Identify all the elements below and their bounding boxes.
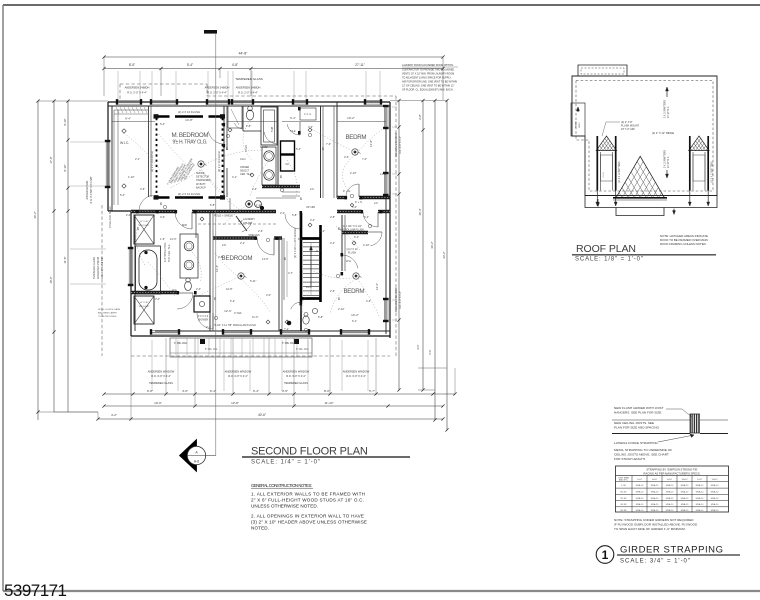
svg-text:R.O. 3'-0" X 4'-4": R.O. 3'-0" X 4'-4" — [399, 291, 402, 309]
svg-text:$: $ — [338, 297, 340, 301]
svg-text:CEILING JOISTS ABOVE. SEE CHAR: CEILING JOISTS ABOVE. SEE CHART — [614, 453, 669, 457]
svg-text:40'-6": 40'-6" — [258, 413, 266, 417]
svg-text:BEDRM: BEDRM — [344, 288, 365, 295]
svg-text:SELECT: SELECT — [240, 170, 250, 173]
svg-text:$: $ — [137, 227, 139, 231]
svg-text:2'-4": 2'-4" — [280, 211, 285, 215]
svg-text:5'-8": 5'-8" — [318, 315, 323, 319]
svg-text:34'-36': 34'-36' — [620, 504, 627, 506]
svg-text:AND HEAT LAMPS: AND HEAT LAMPS — [98, 311, 117, 314]
svg-text:16 R.: 16 R. — [306, 285, 312, 289]
svg-text:SHELVES: SHELVES — [248, 234, 260, 237]
svg-text:LINEN: LINEN — [245, 145, 248, 152]
svg-text:4x12: 4x12 — [667, 479, 673, 481]
svg-text:4'-0": 4'-0" — [416, 344, 420, 349]
svg-text:MSA-20: MSA-20 — [636, 497, 644, 500]
svg-text:$: $ — [160, 202, 162, 206]
svg-text:12" OF CEILING. ONE VENT TO BE: 12" OF CEILING. ONE VENT TO BE WITHIN 12… — [402, 85, 454, 88]
svg-text:SCALE: 1/8" = 1'-0": SCALE: 1/8" = 1'-0" — [575, 257, 643, 263]
svg-text:5'-0": 5'-0" — [120, 193, 125, 197]
svg-text:9'± H. TRAY CLG.: 9'± H. TRAY CLG. — [173, 140, 208, 146]
svg-text:R.O. 2'-0" X 4'-4": R.O. 2'-0" X 4'-4" — [207, 91, 227, 95]
svg-text:AT 16" O.C.: AT 16" O.C. — [667, 156, 670, 168]
svg-text:ANDERSEN WINDOW: ANDERSEN WINDOW — [395, 287, 398, 312]
svg-text:3'-0": 3'-0" — [155, 297, 160, 301]
svg-text:MSA-20: MSA-20 — [651, 503, 659, 506]
svg-text:5'-7": 5'-7" — [369, 389, 375, 393]
svg-text:R.O. 2'-0" X 4'-4": R.O. 2'-0" X 4'-4" — [127, 91, 147, 95]
svg-text:MSA-20: MSA-20 — [696, 509, 704, 512]
svg-text:TO ADJACENT LIVING SPACE FOR S: TO ADJACENT LIVING SPACE FOR SUPPLY — [402, 77, 452, 80]
svg-text:(3) 2" X 10" HEADER ABOVE UNLE: (3) 2" X 10" HEADER ABOVE UNLESS OTHERWI… — [251, 520, 367, 525]
svg-text:6'-2": 6'-2" — [230, 299, 235, 303]
svg-text:MICROLLAM FLUSH: MICROLLAM FLUSH — [340, 228, 364, 231]
svg-text:27'-11": 27'-11" — [355, 63, 365, 67]
svg-text:4'-0 X 4'-0: 4'-0 X 4'-0 — [198, 316, 209, 318]
svg-text:2" X 6" FULL-HEIGHT WOOD STUDS: 2" X 6" FULL-HEIGHT WOOD STUDS AT 16" O.… — [251, 498, 364, 503]
svg-text:6'-4": 6'-4" — [290, 116, 296, 120]
svg-text:MSA-20: MSA-20 — [651, 497, 659, 500]
svg-text:7'-6": 7'-6" — [326, 142, 331, 146]
svg-text:(2) 2" X 12" RIDGE: (2) 2" X 12" RIDGE — [652, 131, 674, 135]
svg-text:4'-0": 4'-0" — [160, 215, 165, 219]
svg-text:MSA-20: MSA-20 — [696, 503, 704, 506]
svg-text:HANGERS. SEE PLAN FOR SIZE.: HANGERS. SEE PLAN FOR SIZE. — [614, 411, 662, 415]
svg-text:TILE: TILE — [290, 129, 296, 133]
svg-text:ANDERSEN 2468DH: ANDERSEN 2468DH — [125, 86, 150, 90]
svg-text:R.O. 3'-0" X 4'-4": R.O. 3'-0" X 4'-4" — [399, 136, 402, 154]
svg-text:5'-11": 5'-11" — [250, 279, 256, 283]
svg-text:1'-6": 1'-6" — [160, 237, 165, 241]
svg-text:10'-4": 10'-4" — [418, 208, 422, 215]
svg-text:5397171: 5397171 — [4, 581, 67, 600]
svg-text:MIR.: MIR. — [182, 223, 188, 227]
svg-text:TO SPAN EACH SIDE OF GIRDER 1': TO SPAN EACH SIDE OF GIRDER 1'-0" MINIMU… — [614, 527, 686, 531]
svg-text:5'-4": 5'-4" — [296, 147, 301, 151]
svg-text:MSA-20: MSA-20 — [681, 509, 689, 512]
svg-text:10'-2": 10'-2" — [347, 116, 355, 120]
svg-text:2'-10": 2'-10" — [350, 171, 357, 175]
svg-text:5'-0": 5'-0" — [428, 349, 432, 354]
svg-text:14'-8": 14'-8" — [380, 172, 387, 176]
svg-text:2-8: 2-8 — [222, 243, 226, 247]
svg-text:3'-6": 3'-6" — [308, 125, 313, 129]
svg-text:TUB: TUB — [270, 127, 274, 132]
svg-text:12x12: 12x12 — [712, 479, 719, 481]
svg-text:8'-10": 8'-10" — [63, 118, 67, 125]
svg-text:3'-1": 3'-1" — [316, 249, 321, 253]
svg-text:7'-1": 7'-1" — [284, 327, 289, 331]
svg-text:11'-0": 11'-0" — [252, 315, 258, 319]
svg-text:OWNER: OWNER — [240, 166, 249, 169]
svg-text:MSA-20: MSA-20 — [681, 497, 689, 500]
svg-text:3'-2": 3'-2" — [320, 229, 325, 233]
svg-text:4'-7": 4'-7" — [288, 271, 293, 275]
svg-text:14'-8": 14'-8" — [185, 118, 193, 122]
svg-text:10x12: 10x12 — [682, 479, 689, 481]
svg-text:ROOF FRAMING UNLESS NOTED.: ROOF FRAMING UNLESS NOTED. — [660, 242, 707, 246]
svg-text:MSA-20: MSA-20 — [666, 509, 674, 512]
svg-text:ANDERSEN WINDOW: ANDERSEN WINDOW — [148, 370, 175, 374]
svg-text:1x12: 1x12 — [697, 479, 703, 481]
svg-text:(2) 2 X 12 BATTENS: (2) 2 X 12 BATTENS — [711, 161, 714, 183]
svg-text:14" X 46": 14" X 46" — [139, 221, 148, 223]
svg-text:2 X 8: 2 X 8 — [603, 172, 605, 178]
svg-text:2-6: 2-6 — [374, 201, 378, 205]
svg-text:UNLESS OTHERWISE NOTED.: UNLESS OTHERWISE NOTED. — [251, 504, 318, 509]
svg-text:2'-8": 2'-8" — [418, 114, 422, 120]
svg-text:4'-2": 4'-2" — [111, 413, 117, 417]
svg-text:6'-4": 6'-4" — [210, 389, 216, 393]
svg-text:10'-2": 10'-2" — [351, 313, 359, 317]
svg-text:$: $ — [226, 147, 228, 151]
svg-text:AT 16" O.C.: AT 16" O.C. — [667, 106, 670, 118]
svg-text:GIRDER STRAPPING: GIRDER STRAPPING — [620, 545, 724, 556]
svg-text:SKYLIGHT: SKYLIGHT — [139, 306, 150, 308]
svg-text:$: $ — [300, 197, 302, 201]
svg-text:MSA-20: MSA-20 — [636, 484, 644, 487]
svg-text:3'-0": 3'-0" — [266, 293, 271, 297]
svg-text:1x12: 1x12 — [637, 479, 643, 481]
svg-text:MSA-20: MSA-20 — [696, 491, 704, 494]
svg-text:PLAN FOR SIZE AND SPACING: PLAN FOR SIZE AND SPACING — [614, 426, 660, 430]
svg-text:5'-4": 5'-4" — [187, 63, 193, 67]
svg-text:2 X 10 RAFTERS: 2 X 10 RAFTERS — [664, 150, 667, 168]
svg-text:TUB. CER. TILE: TUB. CER. TILE — [168, 244, 171, 262]
svg-text:STRAPPING BY 'SIMPSON STRONG-T: STRAPPING BY 'SIMPSON STRONG-TIE' — [646, 468, 698, 472]
svg-text:BEDRM: BEDRM — [346, 134, 367, 141]
svg-text:$: $ — [280, 175, 282, 179]
svg-text:AIR FOR DRYER LINE. ONE VENT T: AIR FOR DRYER LINE. ONE VENT TO BE WITHI… — [402, 81, 457, 84]
svg-text:2-6: 2-6 — [310, 187, 314, 191]
svg-text:2'-6": 2'-6" — [330, 289, 335, 293]
svg-text:ANDERSEN A31: ANDERSEN A31 — [86, 180, 89, 200]
svg-text:UP 16R: UP 16R — [306, 205, 315, 209]
svg-text:MSA-20: MSA-20 — [651, 484, 659, 487]
svg-text:5'-2": 5'-2" — [364, 215, 369, 219]
svg-text:AT 7'-0" AFF: AT 7'-0" AFF — [621, 128, 635, 131]
svg-text:TEMPERED GLASS: TEMPERED GLASS — [284, 381, 308, 385]
svg-text:P. + S.: P. + S. — [343, 189, 351, 193]
svg-text:6'-8": 6'-8" — [210, 203, 215, 207]
svg-text:W.H.: W.H. — [346, 259, 352, 263]
svg-text:2'-1": 2'-1" — [135, 157, 140, 161]
svg-text:7'-0": 7'-0" — [362, 157, 367, 161]
svg-text:ANDERSEN WINDOW: ANDERSEN WINDOW — [395, 132, 398, 157]
svg-text:LATERAL FORCE STRAPPING: LATERAL FORCE STRAPPING — [614, 441, 658, 445]
svg-text:SCALE: 3/4" = 1'-0": SCALE: 3/4" = 1'-0" — [620, 559, 690, 565]
svg-text:6" DBL RAIL: 6" DBL RAIL — [174, 342, 188, 345]
svg-text:3'-4": 3'-4" — [330, 241, 335, 245]
svg-text:3'-9": 3'-9" — [144, 209, 149, 213]
svg-text:DN.: DN. — [298, 237, 303, 241]
svg-text:FLUSH: FLUSH — [348, 251, 356, 254]
svg-text:8'-0": 8'-0" — [324, 389, 330, 393]
svg-text:TO BE PROVIDED: TO BE PROVIDED — [98, 316, 117, 318]
svg-text:2'-10": 2'-10" — [180, 195, 187, 199]
svg-text:RIDGE: RIDGE — [576, 121, 578, 128]
svg-text:OF FLOOR. CL. EQUAL/2000 BTU M: OF FLOOR. CL. EQUAL/2000 BTU MIN. EACH. — [402, 89, 453, 92]
svg-text:R.O. 3'-0" X 4'-4": R.O. 3'-0" X 4'-4" — [346, 374, 366, 378]
svg-text:12'-8": 12'-8" — [231, 401, 239, 405]
svg-text:2'-0": 2'-0" — [126, 213, 131, 217]
svg-text:R.O. 3'-0" X 4'-4": R.O. 3'-0" X 4'-4" — [151, 374, 171, 378]
svg-text:4'-10": 4'-10" — [363, 243, 370, 247]
svg-text:1-30: 1-30 — [621, 485, 626, 487]
svg-text:4'-0": 4'-0" — [182, 389, 188, 393]
svg-text:4'-1": 4'-1" — [232, 175, 237, 179]
svg-text:6'-1": 6'-1" — [352, 319, 357, 323]
svg-text:5'-0": 5'-0" — [352, 205, 357, 209]
svg-text:MSA-20: MSA-20 — [636, 509, 644, 512]
svg-text:MSA-20: MSA-20 — [711, 509, 719, 512]
svg-text:2'-6": 2'-6" — [252, 187, 257, 191]
svg-text:R.O. 2'-0" X 4'-4": R.O. 2'-0" X 4'-4" — [238, 91, 258, 95]
svg-text:4'-1": 4'-1" — [238, 219, 243, 223]
svg-text:ROOF PLAN: ROOF PLAN — [576, 243, 637, 255]
svg-text:CLO.: CLO. — [240, 157, 246, 161]
svg-text:ANDERSEN CW135: ANDERSEN CW135 — [97, 256, 100, 279]
svg-text:6'-4": 6'-4" — [354, 235, 359, 239]
svg-text:R.O. 3'-0" X 4'-4": R.O. 3'-0" X 4'-4" — [286, 374, 306, 378]
svg-text:2'-2": 2'-2" — [240, 241, 245, 245]
svg-text:2'-8": 2'-8" — [330, 215, 335, 219]
svg-text:MSA-20: MSA-20 — [666, 503, 674, 506]
svg-text:MSA-20: MSA-20 — [681, 503, 689, 506]
svg-text:NOTE: LIGHTS, FANS: NOTE: LIGHTS, FANS — [98, 308, 121, 311]
svg-text:MSA-20: MSA-20 — [651, 509, 659, 512]
svg-text:R.O. 3'-0 5/8" X 3'-0 5/8": R.O. 3'-0 5/8" X 3'-0 5/8" — [90, 176, 93, 203]
svg-text:(2) 2 X 10 FLUSH: (2) 2 X 10 FLUSH — [217, 151, 221, 172]
svg-text:5 1/4" X 11 7/8" PARALLAM FLUS: 5 1/4" X 11 7/8" PARALLAM FLUSH — [214, 323, 256, 327]
svg-text:32'-34': 32'-34' — [620, 498, 627, 500]
svg-text:BEDROOM: BEDROOM — [222, 255, 253, 262]
svg-text:(2) 2 X 10 FLUSH: (2) 2 X 10 FLUSH — [150, 151, 154, 172]
svg-text:11'-10": 11'-10" — [324, 401, 333, 405]
svg-text:ANDERSEN 2468DH: ANDERSEN 2468DH — [236, 86, 261, 90]
svg-text:11'-8": 11'-8" — [63, 257, 67, 264]
svg-text:2'-10": 2'-10" — [338, 307, 345, 311]
svg-text:6'-0": 6'-0" — [143, 249, 148, 253]
svg-text:VENT: VENT — [579, 122, 581, 128]
svg-text:2. ALL OPENINGS IN EXTERIOR WA: 2. ALL OPENINGS IN EXTERIOR WALL TO HAVE — [251, 514, 364, 519]
svg-text:W.I.C.: W.I.C. — [120, 141, 129, 145]
svg-text:(2) 2 X 10 FLUSH: (2) 2 X 10 FLUSH — [178, 110, 200, 114]
svg-text:2'-6": 2'-6" — [258, 229, 263, 233]
svg-text:$: $ — [322, 147, 324, 151]
svg-text:3'-2": 3'-2" — [310, 218, 315, 222]
svg-text:A-6: A-6 — [194, 460, 199, 464]
svg-text:SH: SH — [285, 162, 289, 166]
svg-text:1: 1 — [602, 548, 609, 562]
svg-text:MSA-20: MSA-20 — [711, 497, 719, 500]
svg-text:TEMPERED GLASS: TEMPERED GLASS — [93, 257, 96, 279]
svg-text:MSA-20: MSA-20 — [666, 497, 674, 500]
svg-text:AND SPC.: AND SPC. — [619, 479, 628, 482]
svg-text:M. BEDROOM: M. BEDROOM — [172, 132, 209, 139]
svg-text:NEW FLUSH GIRDER WITH JOIST: NEW FLUSH GIRDER WITH JOIST — [614, 406, 664, 410]
svg-text:40'-2": 40'-2" — [33, 211, 37, 218]
svg-text:MSA-20: MSA-20 — [711, 484, 719, 487]
svg-text:ANDERSEN WINDOW: ANDERSEN WINDOW — [283, 370, 310, 374]
svg-text:FOR STRAP LENGTH.: FOR STRAP LENGTH. — [614, 457, 646, 461]
svg-text:CONTRACTOR TO PROVIDE TWO LOUV: CONTRACTOR TO PROVIDE TWO LOUVERED — [402, 69, 454, 72]
svg-text:12'-0": 12'-0" — [224, 309, 232, 313]
svg-text:LAUNDRY ROOM LOUVERED DOOR OPT: LAUNDRY ROOM LOUVERED DOOR OPTION: — [402, 64, 454, 67]
svg-text:NOTED.: NOTED. — [251, 526, 269, 531]
svg-text:10'-8": 10'-8" — [226, 287, 233, 291]
svg-text:TEMPERED GLASS: TEMPERED GLASS — [149, 381, 173, 385]
svg-text:MSA-20: MSA-20 — [666, 484, 674, 487]
svg-text:8'-5": 8'-5" — [129, 63, 135, 67]
svg-text:F. A. G.: F. A. G. — [304, 113, 312, 116]
svg-text:14'-8": 14'-8" — [369, 140, 373, 147]
svg-text:ANDERSEN 2468DH: ANDERSEN 2468DH — [205, 86, 230, 90]
svg-text:43'-2": 43'-2" — [442, 251, 446, 258]
svg-text:GENERAL CONSTRUCTION NOTES:: GENERAL CONSTRUCTION NOTES: — [251, 483, 312, 488]
svg-text:36'-38': 36'-38' — [620, 510, 627, 512]
svg-text:$: $ — [338, 227, 340, 231]
svg-text:5'-4": 5'-4" — [160, 122, 165, 126]
svg-text:SKYLIGHT: SKYLIGHT — [139, 225, 150, 227]
svg-text:TEMPERED GLASS: TEMPERED GLASS — [235, 77, 263, 81]
svg-text:6'-0": 6'-0" — [147, 389, 153, 393]
svg-text:MSA-20: MSA-20 — [681, 491, 689, 494]
svg-text:MSA-20: MSA-20 — [696, 484, 704, 487]
svg-text:R.O. 4'-9" X 2'-0 5/8": R.O. 4'-9" X 2'-0 5/8" — [101, 257, 104, 279]
svg-text:POLE + SHELF: POLE + SHELF — [214, 214, 233, 218]
svg-text:W/ BATT.: W/ BATT. — [196, 183, 206, 186]
svg-text:1'-10": 1'-10" — [128, 175, 135, 179]
svg-text:MSA-20: MSA-20 — [681, 484, 689, 487]
svg-text:4x12: 4x12 — [652, 479, 658, 481]
svg-text:8'-10": 8'-10" — [63, 164, 67, 171]
svg-text:IF PLYWOOD SUBFLOOR INSTALLED: IF PLYWOOD SUBFLOOR INSTALLED ABOVE. PLY… — [614, 523, 698, 527]
svg-text:MSA-20: MSA-20 — [636, 491, 644, 494]
svg-text:60X32: 60X32 — [260, 145, 268, 149]
svg-text:6'-4": 6'-4" — [253, 389, 259, 393]
svg-text:POLE AND SHELF: POLE AND SHELF — [108, 206, 112, 228]
svg-text:MSA-20: MSA-20 — [696, 497, 704, 500]
svg-text:2'-4": 2'-4" — [206, 325, 211, 329]
svg-text:P. + S.: P. + S. — [355, 200, 363, 204]
svg-text:MSA-20: MSA-20 — [651, 491, 659, 494]
svg-text:10'-0": 10'-0" — [154, 401, 162, 405]
svg-text:ANDERSEN WINDOW: ANDERSEN WINDOW — [225, 370, 252, 374]
svg-text:36'-2": 36'-2" — [430, 241, 434, 248]
svg-text:18'-6": 18'-6" — [49, 276, 53, 283]
svg-text:3'-8": 3'-8" — [218, 255, 223, 259]
svg-text:NEW CEILING JOISTS. SEE: NEW CEILING JOISTS. SEE — [614, 421, 654, 425]
svg-text:BACKUP: BACKUP — [196, 186, 206, 189]
svg-text:2 X 10 RAFTERS: 2 X 10 RAFTERS — [664, 100, 667, 118]
svg-text:MSA-20: MSA-20 — [711, 503, 719, 506]
svg-text:RACING AS PER MANUFACTURER'S S: RACING AS PER MANUFACTURER'S SPECS. — [644, 471, 701, 475]
svg-text:4" DIA.: 4" DIA. — [234, 311, 242, 315]
svg-text:13'-5": 13'-5" — [262, 257, 269, 261]
svg-text:4'-5": 4'-5" — [140, 187, 145, 191]
svg-text:SECOND FLOOR PLAN: SECOND FLOOR PLAN — [251, 446, 369, 458]
svg-text:6" DIA. COL.: 6" DIA. COL. — [205, 348, 219, 351]
svg-text:2'-0": 2'-0" — [196, 287, 201, 291]
svg-text:3'-6": 3'-6" — [344, 155, 349, 159]
svg-text:12'-0": 12'-0" — [170, 237, 177, 241]
svg-text:2'-8": 2'-8" — [246, 124, 251, 128]
svg-text:LAUNDRY: LAUNDRY — [243, 218, 255, 221]
svg-text:R.O. 3'-0" X 4'-4": R.O. 3'-0" X 4'-4" — [228, 374, 248, 378]
svg-text:SCALE: 1/4" = 1'-0": SCALE: 1/4" = 1'-0" — [251, 460, 320, 466]
svg-text:14'-6": 14'-6" — [375, 283, 379, 290]
svg-text:30'-32': 30'-32' — [620, 492, 627, 494]
svg-text:4'-8": 4'-8" — [232, 63, 238, 67]
svg-text:1'-11": 1'-11" — [256, 203, 262, 207]
svg-text:1. ALL EXTERIOR WALLS TO BE FR: 1. ALL EXTERIOR WALLS TO BE FRAMED WITH — [251, 492, 365, 497]
svg-text:VENTS 10" X 10" MIN. FROM LAUN: VENTS 10" X 10" MIN. FROM LAUNDRY ROOM — [402, 73, 454, 76]
svg-text:3'-5": 3'-5" — [282, 389, 288, 393]
svg-text:17'-8": 17'-8" — [49, 156, 53, 163]
svg-text:44'-8": 44'-8" — [239, 52, 248, 56]
svg-text:(2) 2 X 12 BATTENS: (2) 2 X 12 BATTENS — [618, 161, 621, 183]
svg-text:METAL STRAPPING TO UNDERSIDE O: METAL STRAPPING TO UNDERSIDE OF — [614, 448, 672, 452]
svg-text:NOTE: STRAPPING UNDER GIRDERS: NOTE: STRAPPING UNDER GIRDERS NOT REQUIR… — [614, 518, 694, 522]
svg-text:MSA-20: MSA-20 — [666, 491, 674, 494]
svg-text:(2) 2 X 10 FLUSH GIRDER: (2) 2 X 10 FLUSH GIRDER — [294, 228, 297, 258]
svg-text:4'-6": 4'-6" — [366, 299, 371, 303]
svg-text:9'-4": 9'-4" — [125, 117, 131, 121]
svg-text:14" X 46": 14" X 46" — [139, 302, 148, 304]
svg-text:MSA-20: MSA-20 — [711, 491, 719, 494]
svg-text:6" DIA. COL.: 6" DIA. COL. — [296, 348, 310, 351]
svg-text:ANDERSEN WINDOW: ANDERSEN WINDOW — [343, 370, 370, 374]
svg-text:6'-0" WHIRLPOOL: 6'-0" WHIRLPOOL — [164, 242, 167, 262]
svg-text:5'-8": 5'-8" — [292, 213, 297, 217]
svg-text:MSA-20: MSA-20 — [636, 503, 644, 506]
